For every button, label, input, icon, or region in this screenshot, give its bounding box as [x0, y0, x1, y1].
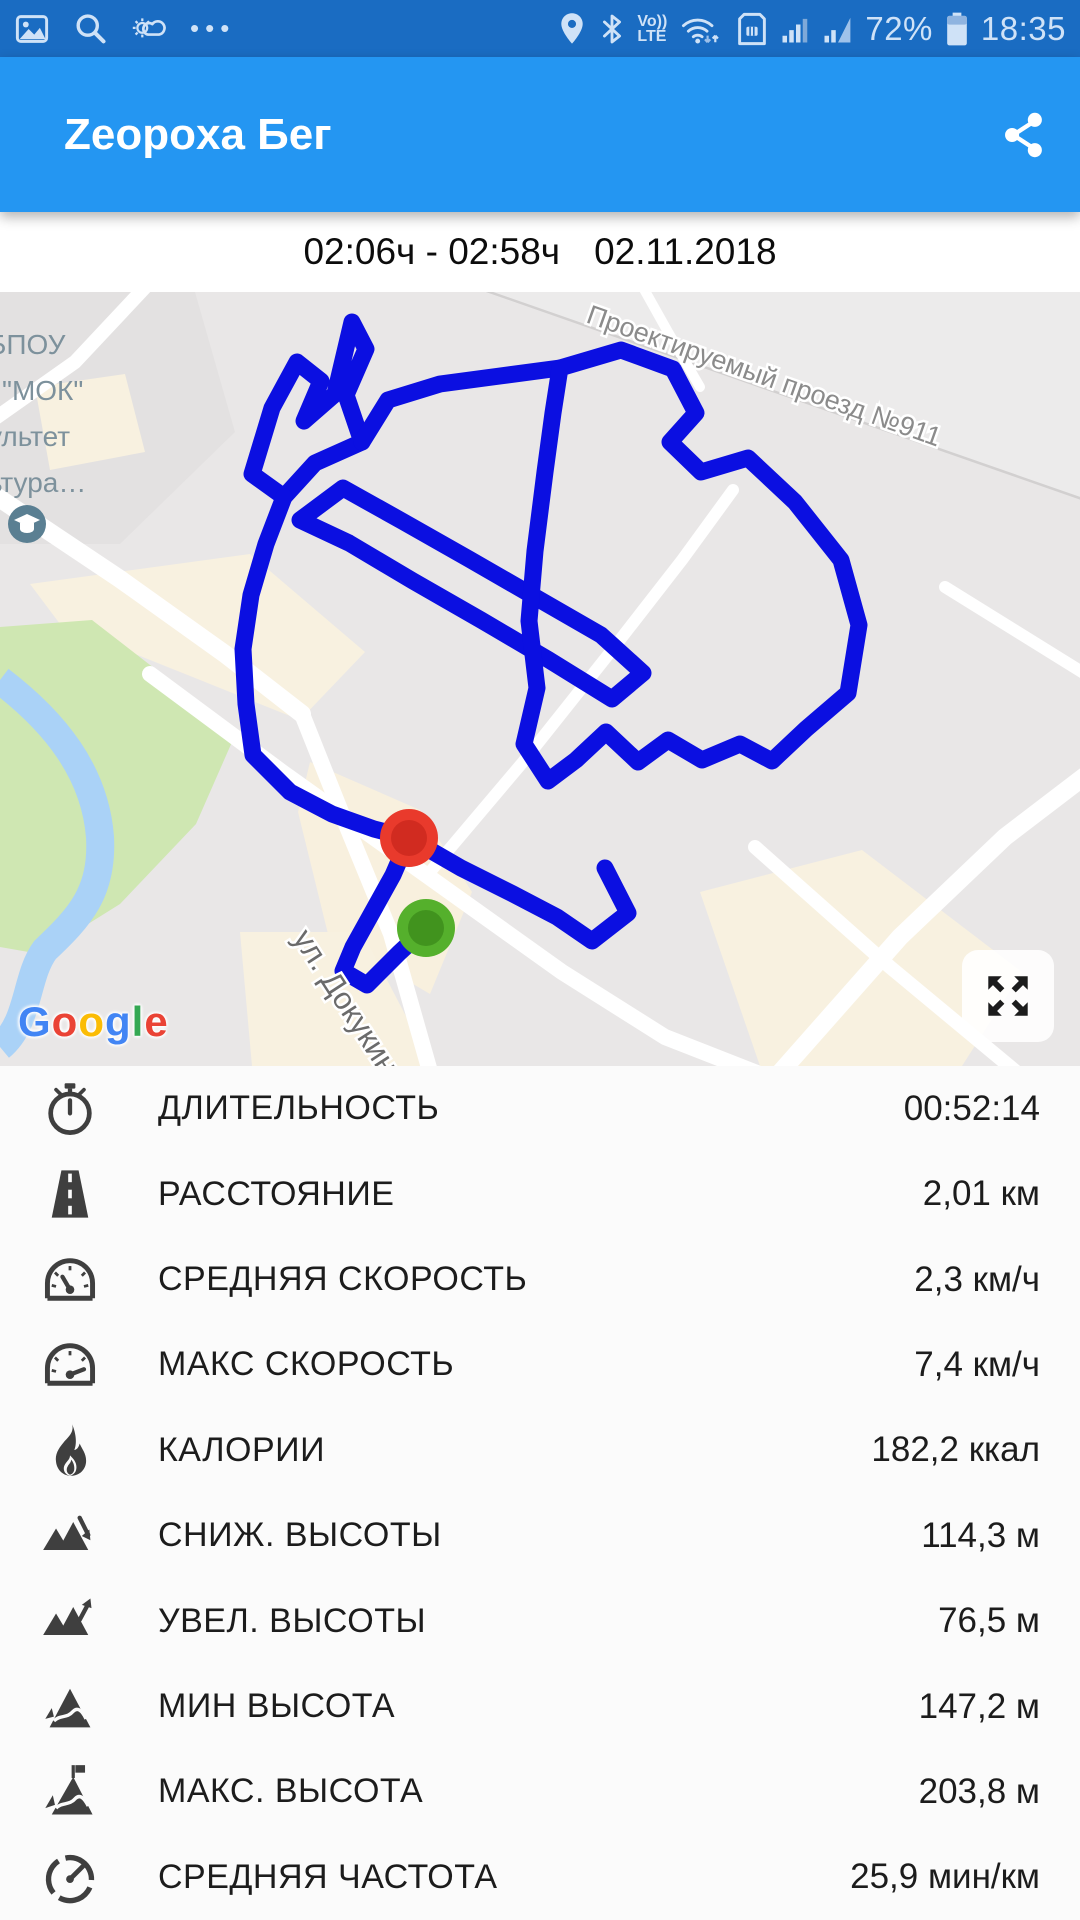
- stat-value: 114,3 м: [921, 1516, 1040, 1556]
- stat-row-distance: РАССТОЯНИЕ 2,01 км: [0, 1151, 1080, 1236]
- workout-date: 02.11.2018: [594, 231, 776, 273]
- stat-label: МИН ВЫСОТА: [158, 1687, 395, 1726]
- stat-value: 7,4 км/ч: [914, 1345, 1040, 1385]
- signal-sim2-icon: [823, 11, 853, 47]
- stopwatch-icon: [41, 1080, 99, 1138]
- weather-icon: [130, 11, 168, 47]
- workout-time-range: 02:06ч - 02:58ч: [303, 231, 560, 273]
- pace-gauge-icon: [41, 1848, 99, 1906]
- status-bar: ••• Vo)) LTE: [0, 0, 1080, 57]
- map-poi-label: БПОУ: [0, 329, 66, 360]
- wifi-icon: [679, 11, 723, 47]
- stat-label: СНИЖ. ВЫСОТЫ: [158, 1516, 442, 1555]
- stat-value: 00:52:14: [904, 1089, 1040, 1129]
- google-attribution[interactable]: Google: [18, 998, 169, 1046]
- stat-label: РАССТОЯНИЕ: [158, 1175, 394, 1214]
- mountain-min-icon: [41, 1678, 99, 1736]
- stat-value: 147,2 м: [919, 1687, 1040, 1727]
- flame-icon: [41, 1421, 99, 1479]
- mountain-descent-icon: [41, 1507, 99, 1565]
- stat-value: 182,2 ккал: [871, 1430, 1040, 1470]
- stat-row-avg-speed: СРЕДНЯЯ СКОРОСТЬ 2,3 км/ч: [0, 1237, 1080, 1322]
- route-map[interactable]: БПОУ "МОК" ультет ьтура… Проектируемый п…: [0, 292, 1080, 1066]
- stat-value: 2,01 км: [923, 1174, 1040, 1214]
- speedometer-icon: [41, 1251, 99, 1309]
- clock: 18:35: [981, 10, 1066, 48]
- stat-value: 25,9 мин/км: [850, 1857, 1040, 1897]
- stat-label: МАКС СКОРОСТЬ: [158, 1345, 454, 1384]
- stat-label: ДЛИТЕЛЬНОСТЬ: [158, 1089, 439, 1128]
- stat-row-avg-pace: СРЕДНЯЯ ЧАСТОТА 25,9 мин/км: [0, 1835, 1080, 1920]
- map-poi-label: ультет: [0, 421, 70, 452]
- stat-label: СРЕДНЯЯ СКОРОСТЬ: [158, 1260, 527, 1299]
- share-icon: [998, 109, 1050, 161]
- speedometer-max-icon: [41, 1336, 99, 1394]
- volte-icon: Vo)) LTE: [637, 14, 667, 44]
- stat-value: 2,3 км/ч: [914, 1260, 1040, 1300]
- share-button[interactable]: [996, 107, 1052, 163]
- stat-row-calories: КАЛОРИИ 182,2 ккал: [0, 1408, 1080, 1493]
- fullscreen-icon: [980, 968, 1036, 1024]
- battery-percent: 72%: [865, 10, 933, 48]
- battery-icon: [945, 10, 969, 48]
- stat-row-elevation-gain: УВЕЛ. ВЫСОТЫ 76,5 м: [0, 1578, 1080, 1663]
- start-marker: [397, 899, 455, 957]
- stat-row-max-altitude: МАКС. ВЫСОТА 203,8 м: [0, 1749, 1080, 1834]
- stat-label: МАКС. ВЫСОТА: [158, 1772, 423, 1811]
- stats-panel: ДЛИТЕЛЬНОСТЬ 00:52:14 РАССТОЯНИЕ 2,01 км: [0, 1066, 1080, 1920]
- signal-sim1-icon: [781, 11, 811, 47]
- stat-row-min-altitude: МИН ВЫСОТА 147,2 м: [0, 1664, 1080, 1749]
- stat-row-max-speed: МАКС СКОРОСТЬ 7,4 км/ч: [0, 1322, 1080, 1407]
- map-canvas: БПОУ "МОК" ультет ьтура… Проектируемый п…: [0, 292, 1080, 1066]
- road-icon: [41, 1165, 99, 1223]
- stat-value: 203,8 м: [919, 1772, 1040, 1812]
- fullscreen-button[interactable]: [962, 950, 1054, 1042]
- map-poi-label: ьтура…: [0, 467, 86, 498]
- stat-value: 76,5 м: [938, 1601, 1040, 1641]
- bluetooth-icon: [599, 11, 625, 47]
- stat-row-duration: ДЛИТЕЛЬНОСТЬ 00:52:14: [0, 1066, 1080, 1151]
- mountain-flag-icon: [41, 1763, 99, 1821]
- stat-label: СРЕДНЯЯ ЧАСТОТА: [158, 1858, 498, 1897]
- stat-label: КАЛОРИИ: [158, 1431, 325, 1470]
- map-poi-label: "МОК": [2, 375, 83, 406]
- more-notifications-icon: •••: [190, 13, 235, 44]
- end-marker: [380, 809, 438, 867]
- stat-row-elevation-loss: СНИЖ. ВЫСОТЫ 114,3 м: [0, 1493, 1080, 1578]
- search-icon: [72, 11, 108, 47]
- sim-icon: [735, 11, 769, 47]
- gallery-icon: [14, 11, 50, 47]
- mountain-ascent-icon: [41, 1592, 99, 1650]
- stat-label: УВЕЛ. ВЫСОТЫ: [158, 1602, 426, 1641]
- location-icon: [557, 11, 587, 47]
- app-bar: Zeopoxa Бег: [0, 57, 1080, 212]
- school-poi-icon[interactable]: [8, 505, 46, 543]
- summary-bar: 02:06ч - 02:58ч 02.11.2018: [0, 212, 1080, 292]
- page-title: Zeopoxa Бег: [64, 110, 332, 160]
